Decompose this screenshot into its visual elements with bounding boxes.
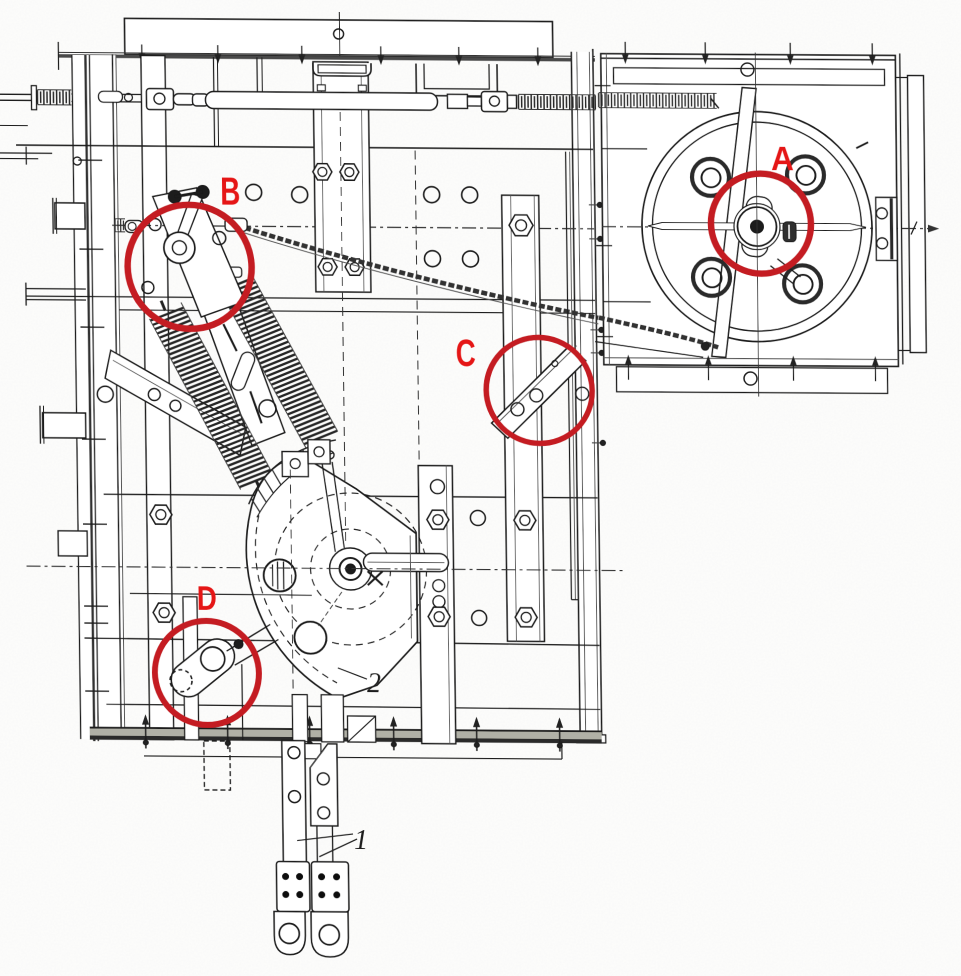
svg-text:2: 2	[367, 668, 381, 699]
svg-text:1: 1	[354, 825, 368, 856]
svg-text:D: D	[197, 580, 217, 618]
svg-text:C: C	[455, 333, 476, 375]
svg-text:B: B	[220, 170, 241, 213]
svg-text:A: A	[771, 140, 794, 178]
